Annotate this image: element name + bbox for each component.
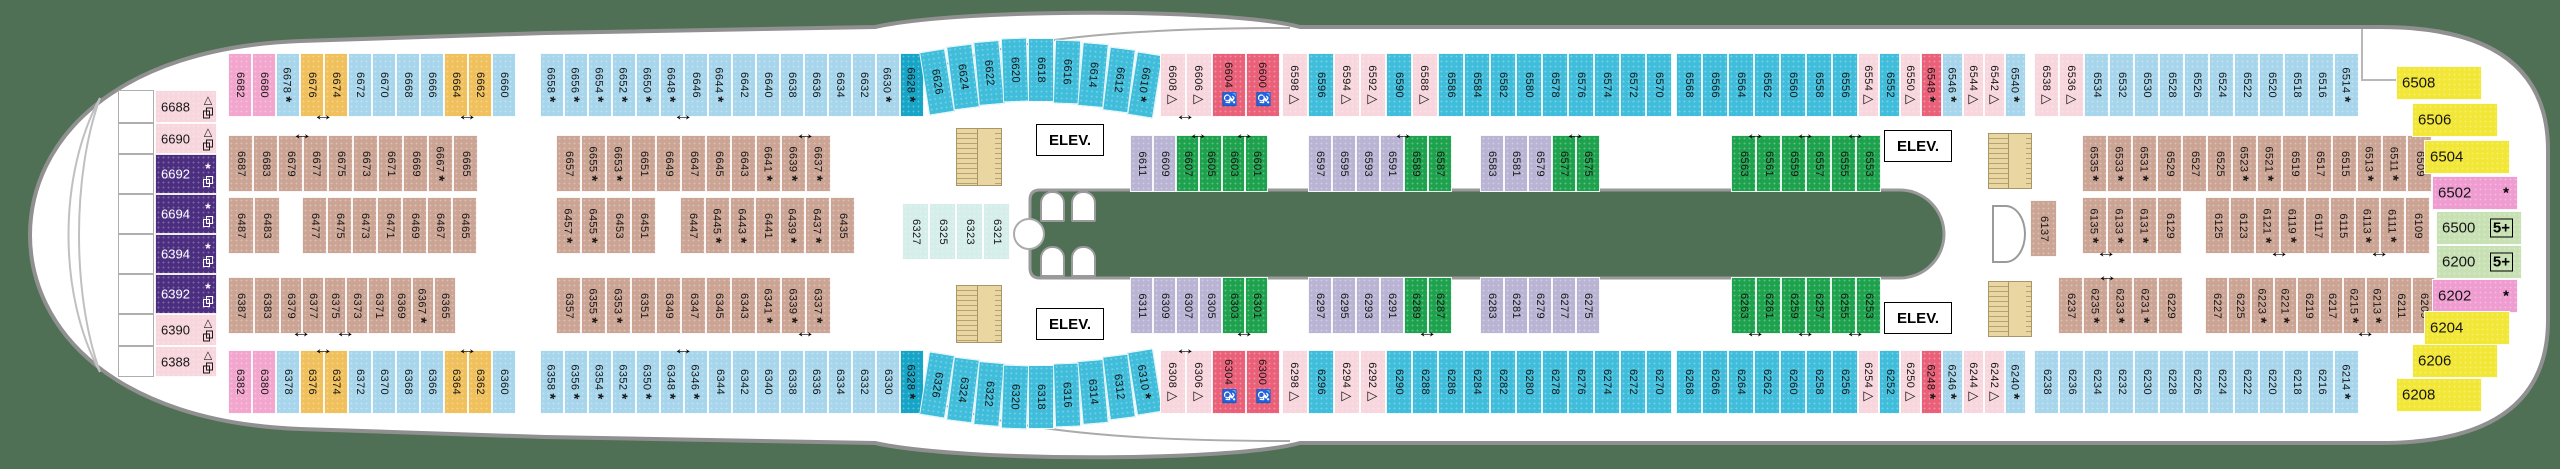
cabin-6387[interactable]: 6387: [228, 277, 254, 334]
cabin-number: 6123: [2237, 212, 2249, 238]
cabin-6650[interactable]: 6650*: [636, 53, 660, 117]
cabin-6366[interactable]: 6366: [420, 350, 444, 414]
cabin-6229[interactable]: 6229: [2158, 277, 2183, 334]
cabin-6690[interactable]: 6690△: [155, 123, 217, 154]
cabin-6233[interactable]: 6233*: [2108, 277, 2133, 334]
cabin-6323[interactable]: 6323: [956, 203, 983, 260]
cabin-6638[interactable]: 6638: [780, 53, 804, 117]
cabin-6651[interactable]: 6651: [631, 135, 656, 192]
cabin-6272[interactable]: 6272: [1620, 350, 1646, 414]
cabin-6437[interactable]: 6437*: [805, 197, 830, 254]
cabin-6234[interactable]: 6234: [2084, 350, 2109, 414]
cabin-6644[interactable]: 6644*: [708, 53, 732, 117]
cabin-6607[interactable]: 6607: [1176, 135, 1199, 192]
cabin-6453[interactable]: 6453: [606, 197, 631, 254]
cabin-6580[interactable]: 6580: [1516, 53, 1542, 117]
cabin-6278[interactable]: 6278: [1542, 350, 1568, 414]
cabin-6603[interactable]: 6603: [1222, 135, 1245, 192]
cabin-6508[interactable]: 6508: [2396, 66, 2482, 100]
cabin-6660[interactable]: 6660: [492, 53, 516, 117]
cabin-6522[interactable]: 6522: [2234, 53, 2259, 117]
cabin-6570[interactable]: 6570: [1646, 53, 1672, 117]
cabin-6256[interactable]: 6256: [1832, 350, 1858, 414]
cabin-6576[interactable]: 6576: [1568, 53, 1594, 117]
cabin-6673[interactable]: 6673: [353, 135, 378, 192]
cabin-6653[interactable]: 6653*: [606, 135, 631, 192]
cabin-6242[interactable]: 6242△: [1984, 350, 2005, 414]
cabin-6640[interactable]: 6640: [756, 53, 780, 117]
cabin-6589[interactable]: 6589: [1404, 135, 1428, 192]
pages-icon: [203, 256, 213, 267]
cabin-6457[interactable]: 6457*: [556, 197, 581, 254]
cabin-6516[interactable]: 6516: [2309, 53, 2334, 117]
cabin-6322[interactable]: 6322: [973, 361, 1004, 427]
cabin-6137[interactable]: 6137: [2030, 200, 2057, 257]
cabin-6125[interactable]: 6125: [2205, 197, 2230, 254]
cabin-6546[interactable]: 6546*: [1942, 53, 1963, 117]
cabin-6441[interactable]: 6441: [755, 197, 780, 254]
cabin-6235[interactable]: 6235*: [2083, 277, 2108, 334]
cabin-6563[interactable]: 6563: [1731, 135, 1756, 192]
cabin-6115[interactable]: 6115: [2330, 197, 2355, 254]
cabin-6572[interactable]: 6572: [1620, 53, 1646, 117]
cabin-6595[interactable]: 6595: [1332, 135, 1356, 192]
cabin-6367[interactable]: 6367*: [412, 277, 434, 334]
cabin-6217[interactable]: 6217: [2320, 277, 2343, 334]
cabin-6306[interactable]: 6306△: [1186, 350, 1212, 414]
cabin-6282[interactable]: 6282: [1490, 350, 1516, 414]
cabin-6321[interactable]: 6321: [983, 203, 1010, 260]
cabin-6679[interactable]: 6679: [278, 135, 303, 192]
cabin-6351[interactable]: 6351: [631, 277, 656, 334]
cabin-6109[interactable]: 6109: [2405, 197, 2430, 254]
cabin-6534[interactable]: 6534: [2084, 53, 2109, 117]
cabin-6469[interactable]: 6469: [402, 197, 427, 254]
cabin-6211[interactable]: 6211: [2389, 277, 2412, 334]
cabin-6552[interactable]: 6552: [1879, 53, 1900, 117]
cabin-6344[interactable]: 6344: [708, 350, 732, 414]
cabin-6392[interactable]: 6392*: [155, 274, 217, 314]
cabin-6502[interactable]: 6502*: [2432, 176, 2518, 210]
cabin-6342[interactable]: 6342: [732, 350, 756, 414]
cabin-6356[interactable]: 6356*: [564, 350, 588, 414]
cabin-6665[interactable]: 6665: [453, 135, 478, 192]
cabin-6533[interactable]: 6533*: [2107, 135, 2132, 192]
cabin-6587[interactable]: 6587: [1428, 135, 1452, 192]
cabin-6376[interactable]: 6376: [300, 350, 324, 414]
cabin-6561[interactable]: 6561: [1756, 135, 1781, 192]
cabin-6286[interactable]: 6286: [1438, 350, 1464, 414]
cabin-6368[interactable]: 6368: [396, 350, 420, 414]
cabin-6554[interactable]: 6554△: [1858, 53, 1879, 117]
cabin-6232[interactable]: 6232: [2109, 350, 2134, 414]
cabin-6634[interactable]: 6634: [828, 53, 852, 117]
cabin-6254[interactable]: 6254△: [1858, 350, 1879, 414]
cabin-6577[interactable]: 6577: [1552, 135, 1576, 192]
cabin-6528[interactable]: 6528: [2159, 53, 2184, 117]
cabin-6521[interactable]: 6521*: [2257, 135, 2282, 192]
cabin-6514[interactable]: 6514*: [2334, 53, 2359, 117]
cabin-6290[interactable]: 6290: [1386, 350, 1412, 414]
cabin-6694[interactable]: 6694*: [155, 194, 217, 234]
cabin-6518[interactable]: 6518: [2284, 53, 2309, 117]
cabin-6527[interactable]: 6527: [2182, 135, 2207, 192]
cabin-6616[interactable]: 6616: [1053, 40, 1081, 105]
cabin-6598[interactable]: 6598△: [1282, 53, 1308, 117]
cabin-6645[interactable]: 6645: [706, 135, 731, 192]
cabin-6611[interactable]: 6611: [1130, 135, 1153, 192]
cabin-6487[interactable]: 6487: [228, 197, 254, 254]
cabin-6231[interactable]: 6231*: [2133, 277, 2158, 334]
cabin-6656[interactable]: 6656*: [564, 53, 588, 117]
cabin-6348[interactable]: 6348*: [660, 350, 684, 414]
cabin-6678[interactable]: 6678*: [276, 53, 300, 117]
cabin-6566[interactable]: 6566: [1702, 53, 1728, 117]
cabin-6592[interactable]: 6592△: [1360, 53, 1386, 117]
cabin-6535[interactable]: 6535*: [2082, 135, 2107, 192]
cabin-6334[interactable]: 6334: [828, 350, 852, 414]
cabin-6340[interactable]: 6340: [756, 350, 780, 414]
cabin-6371[interactable]: 6371: [368, 277, 390, 334]
cabin-6523[interactable]: 6523*: [2232, 135, 2257, 192]
cabin-6443[interactable]: 6443*: [730, 197, 755, 254]
cabin-6202[interactable]: 6202*: [2432, 279, 2518, 313]
cabin-6308[interactable]: 6308△: [1160, 350, 1186, 414]
cabin-6473[interactable]: 6473: [352, 197, 377, 254]
cabin-6620[interactable]: 6620: [1001, 38, 1029, 103]
cabin-6258[interactable]: 6258: [1806, 350, 1832, 414]
cabin-6519[interactable]: 6519: [2282, 135, 2307, 192]
cabin-6593[interactable]: 6593: [1356, 135, 1380, 192]
cabin-6372[interactable]: 6372: [348, 350, 372, 414]
cabin-6542[interactable]: 6542△: [1984, 53, 2005, 117]
cabin-6244[interactable]: 6244△: [1963, 350, 1984, 414]
cabin-6370[interactable]: 6370: [372, 350, 396, 414]
cabin-6531[interactable]: 6531*: [2132, 135, 2157, 192]
cabin-6500[interactable]: 65005+: [2436, 211, 2522, 245]
cabin-6131[interactable]: 6131*: [2132, 197, 2157, 254]
cabin-6358[interactable]: 6358*: [540, 350, 564, 414]
cabin-6544[interactable]: 6544△: [1963, 53, 1984, 117]
cabin-6540[interactable]: 6540*: [2005, 53, 2026, 117]
cabin-6642[interactable]: 6642: [732, 53, 756, 117]
cabin-6652[interactable]: 6652*: [612, 53, 636, 117]
cabin-6378[interactable]: 6378: [276, 350, 300, 414]
cabin-6583[interactable]: 6583: [1480, 135, 1504, 192]
cabin-6390[interactable]: 6390△: [155, 314, 217, 346]
cabin-6683[interactable]: 6683: [253, 135, 278, 192]
cabin-6295[interactable]: 6295: [1332, 277, 1356, 334]
cabin-6675[interactable]: 6675: [328, 135, 353, 192]
cabin-6225[interactable]: 6225: [2228, 277, 2251, 334]
cabin-6274[interactable]: 6274: [1594, 350, 1620, 414]
cabin-6517[interactable]: 6517: [2307, 135, 2332, 192]
cabin-6309[interactable]: 6309: [1153, 277, 1176, 334]
cabin-6655[interactable]: 6655*: [581, 135, 606, 192]
cabin-6548[interactable]: 6548*: [1921, 53, 1942, 117]
cabin-6445[interactable]: 6445*: [705, 197, 730, 254]
cabin-6467[interactable]: 6467: [427, 197, 452, 254]
cabin-6557[interactable]: 6557: [1806, 135, 1831, 192]
cabin-6568[interactable]: 6568: [1676, 53, 1702, 117]
cabin-6511[interactable]: 6511*: [2382, 135, 2407, 192]
cabin-6560[interactable]: 6560: [1780, 53, 1806, 117]
cabin-6682[interactable]: 6682: [228, 53, 252, 117]
cabin-6349[interactable]: 6349: [656, 277, 681, 334]
cabin-6224[interactable]: 6224: [2209, 350, 2234, 414]
cabin-6447[interactable]: 6447: [680, 197, 705, 254]
cabin-6276[interactable]: 6276: [1568, 350, 1594, 414]
cabin-6636[interactable]: 6636: [804, 53, 828, 117]
cabin-6584[interactable]: 6584: [1464, 53, 1490, 117]
cabin-6471[interactable]: 6471: [377, 197, 402, 254]
cabin-6520[interactable]: 6520: [2259, 53, 2284, 117]
cabin-6353[interactable]: 6353*: [606, 277, 631, 334]
cabin-6227[interactable]: 6227: [2205, 277, 2228, 334]
cabin-6219[interactable]: 6219: [2297, 277, 2320, 334]
cabin-6667[interactable]: 6667*: [428, 135, 453, 192]
cabin-6591[interactable]: 6591: [1380, 135, 1404, 192]
cabin-6532[interactable]: 6532: [2109, 53, 2134, 117]
cabin-6529[interactable]: 6529: [2157, 135, 2182, 192]
cabin-6283[interactable]: 6283: [1480, 277, 1504, 334]
cabin-6350[interactable]: 6350*: [636, 350, 660, 414]
cabin-6369[interactable]: 6369: [390, 277, 412, 334]
cabin-6325[interactable]: 6325: [929, 203, 956, 260]
cabin-6688[interactable]: 6688△: [155, 90, 217, 123]
cabin-6455[interactable]: 6455*: [581, 197, 606, 254]
cabin-6594[interactable]: 6594△: [1334, 53, 1360, 117]
cabin-6298[interactable]: 6298△: [1282, 350, 1308, 414]
cabin-6513[interactable]: 6513*: [2357, 135, 2382, 192]
cabin-6208[interactable]: 6208: [2396, 378, 2482, 412]
cabin-6214[interactable]: 6214*: [2334, 350, 2359, 414]
cabin-6360[interactable]: 6360: [492, 350, 516, 414]
cabin-6268[interactable]: 6268: [1676, 350, 1702, 414]
cabin-6364[interactable]: 6364: [444, 350, 468, 414]
cabin-6553[interactable]: 6553: [1856, 135, 1881, 192]
cabin-6669[interactable]: 6669: [403, 135, 428, 192]
cabin-6266[interactable]: 6266: [1702, 350, 1728, 414]
cabin-6250[interactable]: 6250△: [1900, 350, 1921, 414]
cabin-6222[interactable]: 6222: [2234, 350, 2259, 414]
cabin-6581[interactable]: 6581: [1504, 135, 1528, 192]
cabin-6300[interactable]: 6300♿: [1246, 350, 1280, 414]
cabin-6524[interactable]: 6524: [2209, 53, 2234, 117]
cabin-6506[interactable]: 6506: [2412, 103, 2498, 137]
cabin-6332[interactable]: 6332: [852, 350, 876, 414]
cabin-6129[interactable]: 6129: [2157, 197, 2182, 254]
cabin-6579[interactable]: 6579: [1528, 135, 1552, 192]
cabin-6362[interactable]: 6362: [468, 350, 492, 414]
cabin-6562[interactable]: 6562: [1754, 53, 1780, 117]
cabin-6341[interactable]: 6341*: [756, 277, 781, 334]
cabin-6223[interactable]: 6223*: [2251, 277, 2274, 334]
cabin-6574[interactable]: 6574: [1594, 53, 1620, 117]
cabin-6526[interactable]: 6526: [2184, 53, 2209, 117]
cabin-number: 6131*: [2136, 208, 2153, 243]
cabin-6216[interactable]: 6216: [2309, 350, 2334, 414]
cabin-6246[interactable]: 6246*: [1942, 350, 1963, 414]
cabin-6204[interactable]: 6204: [2424, 311, 2510, 345]
cabin-6280[interactable]: 6280: [1516, 350, 1542, 414]
cabin-6649[interactable]: 6649: [656, 135, 681, 192]
cabin-6465[interactable]: 6465: [452, 197, 477, 254]
cabin-6680[interactable]: 6680: [252, 53, 276, 117]
cabin-6657[interactable]: 6657: [556, 135, 581, 192]
cabin-6355[interactable]: 6355*: [581, 277, 606, 334]
cabin-6218[interactable]: 6218: [2284, 350, 2309, 414]
cabin-6525[interactable]: 6525: [2207, 135, 2232, 192]
cabin-6483[interactable]: 6483: [254, 197, 280, 254]
cabin-6354[interactable]: 6354*: [588, 350, 612, 414]
cabin-6609[interactable]: 6609: [1153, 135, 1176, 192]
cabin-6588[interactable]: 6588△: [1412, 53, 1438, 117]
cabin-6305[interactable]: 6305: [1199, 277, 1222, 334]
cabin-6240[interactable]: 6240*: [2005, 350, 2026, 414]
cabin-6338[interactable]: 6338: [780, 350, 804, 414]
cabin-6439[interactable]: 6439*: [780, 197, 805, 254]
cabin-6262[interactable]: 6262: [1754, 350, 1780, 414]
cabin-6538[interactable]: 6538△: [2034, 53, 2059, 117]
cabin-6288[interactable]: 6288: [1412, 350, 1438, 414]
cabin-6388[interactable]: 6388△: [155, 346, 217, 377]
cabin-6668[interactable]: 6668: [396, 53, 420, 117]
cabin-6451[interactable]: 6451: [631, 197, 656, 254]
cabin-6559[interactable]: 6559: [1781, 135, 1806, 192]
cabin-6279[interactable]: 6279: [1528, 277, 1552, 334]
cabin-6586[interactable]: 6586: [1438, 53, 1464, 117]
cabin-6220[interactable]: 6220: [2259, 350, 2284, 414]
cabin-6296[interactable]: 6296: [1308, 350, 1334, 414]
cabin-6558[interactable]: 6558: [1806, 53, 1832, 117]
cabin-6365[interactable]: 6365: [434, 277, 456, 334]
cabin-6575[interactable]: 6575: [1576, 135, 1600, 192]
cabin-6637[interactable]: 6637*: [806, 135, 831, 192]
cabin-6343[interactable]: 6343: [731, 277, 756, 334]
cabin-6347[interactable]: 6347: [681, 277, 706, 334]
cabin-6206[interactable]: 6206: [2412, 344, 2498, 378]
cabin-6564[interactable]: 6564: [1728, 53, 1754, 117]
cabin-6536[interactable]: 6536△: [2059, 53, 2084, 117]
cabin-6477[interactable]: 6477: [302, 197, 327, 254]
cabin-6374[interactable]: 6374: [324, 350, 348, 414]
cabin-6238[interactable]: 6238: [2034, 350, 2059, 414]
cabin-6475[interactable]: 6475: [327, 197, 352, 254]
cabin-6666[interactable]: 6666: [420, 53, 444, 117]
cabin-6294[interactable]: 6294△: [1334, 350, 1360, 414]
cabin-6270[interactable]: 6270: [1646, 350, 1672, 414]
cabin-6643[interactable]: 6643: [731, 135, 756, 192]
cabin-6293[interactable]: 6293: [1356, 277, 1380, 334]
cabin-6504[interactable]: 6504: [2424, 140, 2510, 174]
cabin-6435[interactable]: 6435: [830, 197, 855, 254]
cabin-6352[interactable]: 6352*: [612, 350, 636, 414]
cabin-6590[interactable]: 6590: [1386, 53, 1412, 117]
cabin-6345[interactable]: 6345: [706, 277, 731, 334]
cabin-6252[interactable]: 6252: [1879, 350, 1900, 414]
cabin-6292[interactable]: 6292△: [1360, 350, 1386, 414]
cabin-6672[interactable]: 6672: [348, 53, 372, 117]
cabin-6307[interactable]: 6307: [1176, 277, 1199, 334]
cabin-6550[interactable]: 6550△: [1900, 53, 1921, 117]
cabin-6248[interactable]: 6248*: [1921, 350, 1942, 414]
cabin-6236[interactable]: 6236: [2059, 350, 2084, 414]
cabin-6394[interactable]: 6394*: [155, 234, 217, 274]
cabin-6515[interactable]: 6515: [2332, 135, 2357, 192]
cabin-6123[interactable]: 6123: [2230, 197, 2255, 254]
cabin-6226[interactable]: 6226: [2184, 350, 2209, 414]
cabin-6200[interactable]: 62005+: [2436, 245, 2522, 279]
cabin-6555[interactable]: 6555: [1831, 135, 1856, 192]
cabin-6383[interactable]: 6383: [254, 277, 280, 334]
cabin-6281[interactable]: 6281: [1504, 277, 1528, 334]
cabin-6622[interactable]: 6622: [973, 40, 1004, 106]
cabin-6221[interactable]: 6221*: [2274, 277, 2297, 334]
cabin-6670[interactable]: 6670: [372, 53, 396, 117]
cabin-6601[interactable]: 6601: [1245, 135, 1268, 192]
cabin-6641[interactable]: 6641*: [756, 135, 781, 192]
cabin-6275[interactable]: 6275: [1576, 277, 1600, 334]
cabin-6605[interactable]: 6605: [1199, 135, 1222, 192]
cabin-6530[interactable]: 6530: [2134, 53, 2159, 117]
cabin-6671[interactable]: 6671: [378, 135, 403, 192]
cabin-6228[interactable]: 6228: [2159, 350, 2184, 414]
cabin-6320[interactable]: 6320: [1001, 365, 1029, 430]
cabin-6264[interactable]: 6264: [1728, 350, 1754, 414]
cabin-6582[interactable]: 6582: [1490, 53, 1516, 117]
cabin-6284[interactable]: 6284: [1464, 350, 1490, 414]
cabin-6677[interactable]: 6677: [303, 135, 328, 192]
cabin-6346[interactable]: 6346*: [684, 350, 708, 414]
cabin-6630[interactable]: 6630*: [876, 53, 900, 117]
cabin-number: 6511*: [2386, 146, 2403, 181]
cabin-6291[interactable]: 6291: [1380, 277, 1404, 334]
cabin-6597[interactable]: 6597: [1308, 135, 1332, 192]
cabin-6277[interactable]: 6277: [1552, 277, 1576, 334]
cabin-6639[interactable]: 6639*: [781, 135, 806, 192]
cabin-6600[interactable]: 6600♿: [1246, 53, 1280, 117]
cabin-6618[interactable]: 6618: [1028, 38, 1054, 102]
cabin-6336[interactable]: 6336: [804, 350, 828, 414]
cabin-6318[interactable]: 6318: [1028, 365, 1054, 429]
cabin-number: 6280: [1523, 369, 1535, 395]
cabin-6260[interactable]: 6260: [1780, 350, 1806, 414]
cabin-6330[interactable]: 6330: [876, 350, 900, 414]
cabin-6316[interactable]: 6316: [1053, 363, 1081, 428]
cabin-6230[interactable]: 6230: [2134, 350, 2159, 414]
cabin-6304[interactable]: 6304♿: [1212, 350, 1246, 414]
cabin-6692[interactable]: 6692*: [155, 154, 217, 194]
cabin-6578[interactable]: 6578: [1542, 53, 1568, 117]
cabin-6311[interactable]: 6311: [1130, 277, 1153, 334]
cabin-6687[interactable]: 6687: [228, 135, 253, 192]
cabin-6237[interactable]: 6237: [2058, 277, 2083, 334]
cabin-6357[interactable]: 6357: [556, 277, 581, 334]
cabin-6380[interactable]: 6380: [252, 350, 276, 414]
cabin-6658[interactable]: 6658*: [540, 53, 564, 117]
cabin-6297[interactable]: 6297: [1308, 277, 1332, 334]
cabin-6654[interactable]: 6654*: [588, 53, 612, 117]
cabin-6382[interactable]: 6382: [228, 350, 252, 414]
cabin-6596[interactable]: 6596: [1308, 53, 1334, 117]
cabin-6647[interactable]: 6647: [681, 135, 706, 192]
cabin-6604[interactable]: 6604♿: [1212, 53, 1246, 117]
cabin-6327[interactable]: 6327: [902, 203, 929, 260]
cabin-6632[interactable]: 6632: [852, 53, 876, 117]
cabin-6117[interactable]: 6117: [2305, 197, 2330, 254]
cabin-6556[interactable]: 6556: [1832, 53, 1858, 117]
